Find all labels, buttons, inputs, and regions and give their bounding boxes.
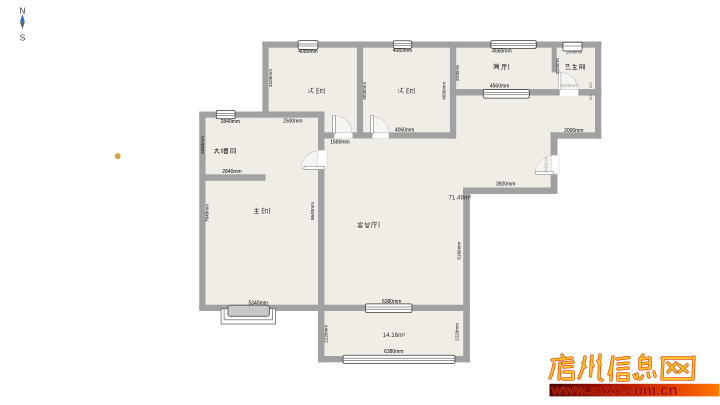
svg-text:2840mm: 2840mm (221, 119, 240, 125)
svg-text:2220mm: 2220mm (324, 325, 329, 343)
svg-text:71.49m²: 71.49m² (448, 195, 471, 202)
svg-text:2040mm: 2040mm (200, 136, 205, 154)
svg-text:600: 600 (589, 94, 593, 100)
svg-text:2200mm: 2200mm (555, 57, 560, 74)
svg-text:14.16m²: 14.16m² (383, 332, 406, 339)
svg-text:2000mm: 2000mm (560, 83, 578, 88)
svg-text:600: 600 (589, 82, 593, 88)
svg-text:4560mm: 4560mm (492, 49, 511, 55)
svg-text:8640mm: 8640mm (310, 202, 315, 220)
svg-text:1460mm: 1460mm (544, 156, 549, 173)
svg-text:5340mm: 5340mm (248, 301, 267, 307)
svg-text:2000mm: 2000mm (564, 128, 583, 134)
svg-text:3920mm: 3920mm (496, 182, 515, 188)
svg-text:6380mm: 6380mm (382, 299, 401, 305)
svg-text:S: S (20, 33, 26, 43)
svg-text:4060mm: 4060mm (393, 48, 412, 54)
svg-text:4560mm: 4560mm (490, 83, 509, 89)
svg-text:2500mm: 2500mm (283, 118, 302, 124)
svg-text:5180mm: 5180mm (456, 242, 461, 260)
svg-text:N: N (19, 6, 25, 16)
svg-text:3100mm: 3100mm (268, 69, 273, 87)
svg-text:6380mm: 6380mm (384, 349, 403, 355)
svg-text:1680mm: 1680mm (330, 140, 349, 146)
svg-text:2220mm: 2220mm (455, 323, 460, 341)
svg-text:1500mm: 1500mm (566, 49, 583, 54)
svg-text:4080mm: 4080mm (298, 49, 317, 55)
svg-text:4030mm: 4030mm (442, 82, 447, 100)
svg-text:4030mm: 4030mm (362, 82, 367, 100)
svg-text:2840mm: 2840mm (222, 169, 241, 175)
svg-text:7640mm: 7640mm (205, 204, 210, 222)
svg-text:www.szxx.com.cn: www.szxx.com.cn (551, 383, 678, 399)
svg-text:2200mm: 2200mm (455, 64, 460, 81)
svg-text:4060mm: 4060mm (395, 128, 414, 134)
